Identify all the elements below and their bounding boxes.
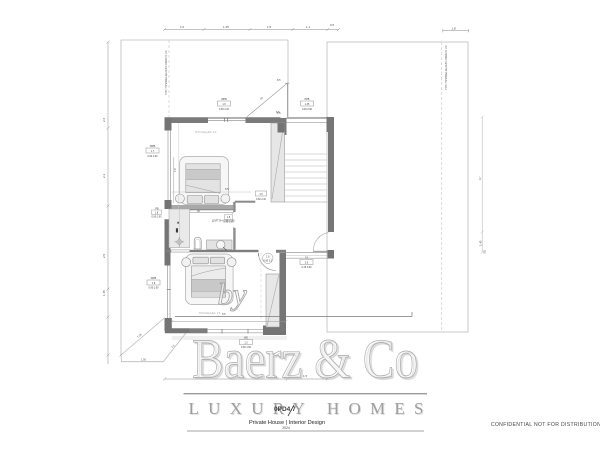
svg-text:1.45: 1.45	[478, 240, 482, 246]
svg-text:1.45: 1.45	[102, 290, 106, 296]
svg-text:2024: 2024	[282, 426, 290, 430]
svg-text:ГРС ПРИМЕНЕНЬЮ ОФИСУ 24: ГРС ПРИМЕНЕНЬЮ ОФИСУ 24	[444, 45, 448, 90]
svg-text:0.90 1.90: 0.90 1.90	[149, 287, 160, 290]
svg-text:2.6: 2.6	[102, 117, 106, 122]
svg-text:0.90 1.90: 0.90 1.90	[148, 155, 159, 158]
svg-text:WPB: WPB	[150, 145, 156, 148]
svg-text:1.0: 1.0	[180, 25, 185, 29]
svg-text:0.45 2.90: 0.45 2.90	[302, 266, 313, 269]
svg-text:ГРС ПРИМЕНЕНЬЮ ОФИСУ 24: ГРС ПРИМЕНЕНЬЮ ОФИСУ 24	[164, 50, 168, 95]
svg-text:1.1: 1.1	[306, 25, 311, 29]
svg-text:1.50: 1.50	[141, 358, 147, 362]
svg-text:8.5: 8.5	[225, 187, 229, 191]
svg-text:Baerz & Co: Baerz & Co	[192, 329, 418, 391]
svg-text:CONFIDENTIAL NOT FOR DISTRIBUT: CONFIDENTIAL NOT FOR DISTRIBUTION	[491, 422, 600, 428]
svg-text:1.5: 1.5	[267, 25, 272, 29]
svg-text:8.5: 8.5	[222, 312, 226, 316]
svg-text:ПЛОЩАДЬ 11: ПЛОЩАДЬ 11	[199, 311, 220, 315]
svg-text:WPB: WPB	[151, 277, 157, 280]
svg-text:0.60 2.3: 0.60 2.3	[263, 260, 272, 263]
svg-text:7A: 7A	[305, 257, 308, 260]
svg-text:ПЛОЩАДЬ 10: ПЛОЩАДЬ 10	[195, 130, 217, 134]
svg-text:0.90 1.90: 0.90 1.90	[224, 221, 235, 224]
svg-text:1.8: 1.8	[452, 26, 457, 30]
svg-text:8.5: 8.5	[276, 110, 280, 114]
svg-text:by: by	[218, 277, 248, 312]
svg-text:2.5: 2.5	[102, 253, 106, 258]
svg-text:PPB: PPB	[305, 98, 310, 101]
svg-text:0.60 2.30: 0.60 2.30	[256, 198, 267, 201]
svg-text:WPB: WPB	[221, 98, 227, 101]
svg-text:4.7: 4.7	[478, 176, 482, 180]
svg-text:1.45: 1.45	[223, 25, 229, 29]
svg-text:0.90 1.90: 0.90 1.90	[152, 216, 163, 219]
svg-text:0.60 2.30: 0.60 2.30	[219, 108, 230, 111]
svg-text:8.5: 8.5	[277, 78, 281, 82]
svg-text:1.35: 1.35	[305, 103, 310, 106]
svg-text:0.5: 0.5	[330, 23, 335, 27]
svg-text:2.3: 2.3	[102, 173, 106, 178]
svg-text:0.45 2.90: 0.45 2.90	[302, 108, 313, 111]
